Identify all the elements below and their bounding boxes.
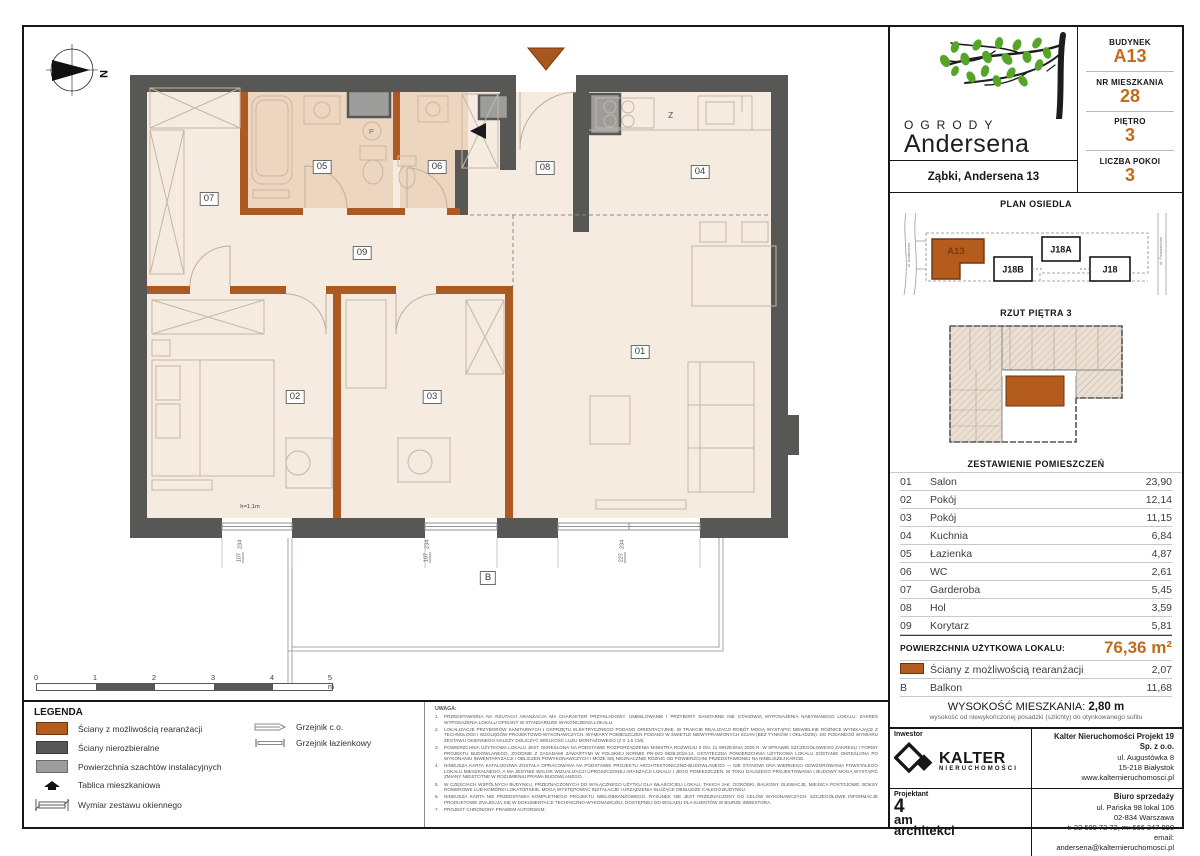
legend-item: Grzejnik c.o.	[252, 722, 371, 732]
scale-tick: 2	[152, 673, 156, 682]
table-row: 09Korytarz5,81	[900, 617, 1172, 635]
floor-overview-title: RZUT PIĘTRA 3	[890, 308, 1182, 318]
notes-block: UWAGA: 1.PRZEDSTAWIONA NA RZUTACH ARANŻA…	[425, 702, 888, 827]
room-area: 12,14	[1146, 494, 1172, 506]
info-nr-mieszkania: NR MIESZKANIA 28	[1086, 72, 1174, 112]
floor-overview-section: RZUT PIĘTRA 3	[890, 302, 1182, 453]
legend-item: Wymiar zestawu okiennego	[34, 797, 252, 813]
room-area: 6,84	[1152, 530, 1172, 542]
footer-block: Inwestor KALTER NIERUCHOMOŚCI Kalter Nie	[890, 727, 1182, 856]
highlighted-unit	[1006, 376, 1064, 406]
room-no: 09	[900, 620, 930, 632]
table-row: BBalkon11,68	[900, 679, 1172, 697]
unit-info-box: BUDYNEK A13 NR MIESZKANIA 28 PIĘTRO 3 LI…	[1078, 27, 1182, 192]
room-no: 07	[900, 584, 930, 596]
building-a13	[932, 239, 984, 279]
room-name: Pokój	[930, 512, 1147, 524]
table-row: 02Pokój12,14	[900, 491, 1172, 509]
apartment-height-note: WYSOKOŚĆ MIESZKANIA: 2,80 m wysokość od …	[890, 697, 1182, 727]
label-j18a: J18A	[1050, 245, 1072, 255]
legend-left-column: Ściany z możliwością rearanżacjiŚciany n…	[34, 722, 252, 819]
room-name: Kuchnia	[930, 530, 1152, 542]
table-row: 07Garderoba5,45	[900, 581, 1172, 599]
apartment-card-sheet: { "info_panel": { "budynek_label": "BUDY…	[0, 0, 1200, 849]
info-pietro: PIĘTRO 3	[1086, 112, 1174, 152]
scale-tick: 0	[34, 673, 38, 682]
note-number: 1.	[435, 714, 441, 725]
room-name: Pokój	[930, 494, 1146, 506]
room-name: Ściany z możliwością rearanżacji	[930, 664, 1152, 676]
note-line: 7.PROJEKT CHRONIONY PRAWEM AUTORSKIM.	[435, 807, 878, 813]
table-row: Ściany z możliwością rearanżacji2,07	[900, 661, 1172, 679]
kalter-logo: KALTER NIERUCHOMOŚCI	[894, 741, 1027, 781]
swatch-orange-icon	[34, 722, 70, 735]
address-line: email: andersena@kalternieruchomosci.pl	[1040, 833, 1174, 853]
room-name: Łazienka	[930, 548, 1152, 560]
note-number: 2.	[435, 727, 441, 744]
note-number: 6.	[435, 794, 441, 805]
orange-wall-swatch-icon	[900, 663, 924, 674]
room-no: 08	[900, 602, 930, 614]
note-line: 4.NINIEJSZA KARTA KATALOGOWA ZOSTAŁA OPR…	[435, 763, 878, 780]
room-no: B	[900, 682, 930, 694]
scale-tick: 4	[270, 673, 274, 682]
scale-tick: 3	[211, 673, 215, 682]
notes-lines: 1.PRZEDSTAWIONA NA RZUTACH ARANŻACJA MA …	[435, 714, 878, 813]
notes-title: UWAGA:	[435, 706, 878, 712]
room-area: 3,59	[1152, 602, 1172, 614]
usable-area-row: POWIERZCHNIA UŻYTKOWA LOKALU: 76,36 m²	[900, 635, 1172, 661]
kalter-logo-icon	[894, 741, 934, 781]
kitchen-z-label: z	[668, 109, 674, 121]
note-text: W CZĘŚCIACH WSPÓLNYCH BUDYNKU, PRZEZNACZ…	[444, 782, 878, 793]
legend-title: LEGENDA	[34, 707, 414, 718]
scale-tick: 1	[93, 673, 97, 682]
room-no: 01	[900, 476, 930, 488]
company-address: Kalter Nieruchomości Projekt 19 Sp. z o.…	[1032, 729, 1182, 788]
room-no	[900, 663, 930, 677]
note-line: 1.PRZEDSTAWIONA NA RZUTACH ARANŻACJA MA …	[435, 714, 878, 725]
street-right-label: ul. Powstańców	[1158, 237, 1163, 265]
north-arrow-icon	[52, 60, 90, 81]
company-lines: ul. Augustówka 815-218 Białystokwww.kalt…	[1040, 753, 1174, 783]
note-text: PRZEDSTAWIONA NA RZUTACH ARANŻACJA MA CH…	[444, 714, 878, 725]
site-plan-map: A13 J18B J18A J18 ul. Andersena ul. Pows…	[890, 211, 1180, 297]
legend-item: Ściany z możliwością rearanżacji	[34, 722, 252, 735]
balcony-outline	[288, 538, 723, 690]
right-panel: OGRODY Andersena Ząbki, Andersena 13 BUD…	[888, 27, 1182, 827]
note-text: POWIERZCHNIA UŻYTKOWA LOKALU JEST OKREŚL…	[444, 745, 878, 762]
usable-area-value: 76,36 m²	[1104, 638, 1172, 658]
legend-item: Grzejnik łazienkowy	[252, 738, 371, 748]
label-a13: A13	[947, 246, 964, 257]
room-name: Garderoba	[930, 584, 1152, 596]
scale-tick: 5 m	[328, 673, 334, 691]
note-line: 2.LOKALIZACJE PRZYBORÓW SANITARNYCH I OS…	[435, 727, 878, 744]
address-line: ul. Augustówka 8	[1040, 753, 1174, 763]
address-line: t: 22 509 72 72, m: 666 347 990	[1040, 823, 1174, 833]
grzejnik-laz-icon	[252, 738, 288, 748]
legend-item-label: Wymiar zestawu okiennego	[78, 800, 182, 810]
entrance-marker-icon	[528, 48, 564, 70]
note-line: 5.W CZĘŚCIACH WSPÓLNYCH BUDYNKU, PRZEZNA…	[435, 782, 878, 793]
legend-item-label: Powierzchnia szachtów instalacyjnych	[78, 762, 222, 772]
extra-rows: Ściany z możliwością rearanżacji2,07BBal…	[890, 661, 1182, 697]
legend-item: Tablica mieszkaniowa	[34, 779, 252, 791]
inwestor-label: Inwestor	[894, 731, 1027, 738]
room-name: Balkon	[930, 682, 1147, 694]
projektant-cell: Projektant 4 am architekci	[890, 789, 1032, 856]
table-row: 03Pokój11,15	[900, 509, 1172, 527]
note-text: NINIEJSZA KARTA KATALOGOWA ZOSTAŁA OPRAC…	[444, 763, 878, 780]
table-row: 01Salon23,90	[900, 473, 1172, 491]
room-area: 5,81	[1152, 620, 1172, 632]
north-compass: N	[46, 44, 109, 96]
north-letter: N	[97, 70, 109, 78]
dimension-lines	[222, 538, 700, 568]
address-line: 02-834 Warszawa	[1040, 813, 1174, 823]
brand-title: OGRODY Andersena	[904, 118, 1029, 156]
kalter-sub: NIERUCHOMOŚCI	[939, 766, 1018, 772]
room-no: 05	[900, 548, 930, 560]
room-area: 11,68	[1147, 682, 1173, 694]
label-j18: J18	[1102, 265, 1117, 275]
tablica-icon	[34, 779, 70, 791]
sheet-frame: z P N 010203040506070809Bh=1,1m107234107…	[22, 25, 1184, 829]
note-number: 4.	[435, 763, 441, 780]
legend-item: Powierzchnia szachtów instalacyjnych	[34, 760, 252, 773]
room-area: 11,15	[1147, 512, 1173, 524]
room-area: 4,87	[1152, 548, 1172, 560]
street-left-label: ul. Andersena	[906, 242, 911, 267]
address-line: www.kalternieruchomosci.pl	[1040, 773, 1174, 783]
room-name: Korytarz	[930, 620, 1152, 632]
legend: LEGENDA Ściany z możliwością rearanżacji…	[24, 702, 425, 827]
label-j18b: J18B	[1002, 265, 1024, 275]
height-label: WYSOKOŚĆ MIESZKANIA:	[948, 701, 1086, 713]
address-line: ul. Pańska 98 lokal 106	[1040, 803, 1174, 813]
washer-p-label: P	[369, 129, 374, 136]
note-line: 3.POWIERZCHNIA UŻYTKOWA LOKALU JEST OKRE…	[435, 745, 878, 762]
site-plan-section: PLAN OSIEDLA	[890, 193, 1182, 302]
legend-right-column: Grzejnik c.o.Grzejnik łazienkowy	[252, 722, 371, 819]
room-no: 02	[900, 494, 930, 506]
info-budynek: BUDYNEK A13	[1086, 32, 1174, 72]
window-dim-icon	[34, 797, 70, 813]
note-text: NINIEJSZA KARTA NIE PRZEDSTAWIA KOMPLETN…	[444, 794, 878, 805]
room-area: 5,45	[1152, 584, 1172, 596]
legend-item-label: Ściany nierozbieralne	[78, 743, 159, 753]
usable-area-label: POWIERZCHNIA UŻYTKOWA LOKALU:	[900, 643, 1104, 653]
brand-logo: OGRODY Andersena	[890, 27, 1077, 160]
legend-item-label: Grzejnik łazienkowy	[296, 738, 371, 748]
table-row: 04Kuchnia6,84	[900, 527, 1172, 545]
height-subnote: wysokość od niewykończonej posadzki (szl…	[890, 714, 1182, 721]
rooms-table-section: ZESTAWIENIE POMIESZCZEŃ 01Salon23,9002Po…	[890, 453, 1182, 697]
scale-bar-numbers: 012345 m	[36, 673, 336, 683]
note-text: PROJEKT CHRONIONY PRAWEM AUTORSKIM.	[444, 807, 546, 813]
rooms-table: 01Salon23,9002Pokój12,1403Pokój11,1504Ku…	[890, 472, 1182, 635]
legend-item-label: Grzejnik c.o.	[296, 722, 343, 732]
tree-logo-icon	[899, 31, 1069, 119]
room-name: Hol	[930, 602, 1152, 614]
scale-bar-track	[36, 683, 333, 691]
brand-line2: Andersena	[904, 132, 1029, 156]
note-number: 7.	[435, 807, 441, 813]
room-no: 06	[900, 566, 930, 578]
info-liczba-pokoi: LICZBA POKOI 3	[1086, 151, 1174, 190]
room-name: WC	[930, 566, 1152, 578]
table-row: 05Łazienka4,87	[900, 545, 1172, 563]
inwestor-cell: Inwestor KALTER NIERUCHOMOŚCI	[890, 729, 1032, 788]
note-text: LOKALIZACJE PRZYBORÓW SANITARNYCH I OSPR…	[444, 727, 878, 744]
projektant-label: Projektant	[894, 791, 1027, 798]
swatch-dark-icon	[34, 741, 70, 754]
room-area: 23,90	[1146, 476, 1172, 488]
sales-office-label: Biuro sprzedaży	[1040, 792, 1174, 802]
room-area: 2,07	[1152, 664, 1172, 676]
bottom-strip: LEGENDA Ściany z możliwością rearanżacji…	[24, 700, 888, 827]
address-line: 15-218 Białystok	[1040, 763, 1174, 773]
room-name: Salon	[930, 476, 1146, 488]
project-address: Ząbki, Andersena 13	[890, 160, 1077, 192]
legend-item-label: Tablica mieszkaniowa	[78, 780, 160, 790]
company-name: Kalter Nieruchomości Projekt 19 Sp. z o.…	[1040, 732, 1174, 752]
note-line: 6.NINIEJSZA KARTA NIE PRZEDSTAWIA KOMPLE…	[435, 794, 878, 805]
note-number: 3.	[435, 745, 441, 762]
rooms-table-title: ZESTAWIENIE POMIESZCZEŃ	[890, 459, 1182, 469]
table-row: 08Hol3,59	[900, 599, 1172, 617]
site-plan-title: PLAN OSIEDLA	[890, 199, 1182, 209]
scale-bar: 012345 m	[36, 673, 336, 691]
kalter-name: KALTER	[939, 751, 1018, 766]
table-row: 06WC2,61	[900, 563, 1172, 581]
sales-office-lines: ul. Pańska 98 lokal 10602-834 Warszawat:…	[1040, 803, 1174, 853]
buildings	[932, 237, 1130, 281]
room-no: 03	[900, 512, 930, 524]
floor-overview-map	[890, 320, 1180, 448]
architect-logo: 4 am architekci	[894, 799, 1027, 836]
room-no: 04	[900, 530, 930, 542]
note-number: 5.	[435, 782, 441, 793]
legend-item: Ściany nierozbieralne	[34, 741, 252, 754]
sales-office: Biuro sprzedaży ul. Pańska 98 lokal 1060…	[1032, 789, 1182, 856]
legend-item-label: Ściany z możliwością rearanżacji	[78, 724, 202, 734]
room-area: 2,61	[1152, 566, 1172, 578]
grzejnik-co-icon	[252, 722, 288, 732]
swatch-gray-icon	[34, 760, 70, 773]
header-row: OGRODY Andersena Ząbki, Andersena 13 BUD…	[890, 27, 1182, 193]
height-value: 2,80 m	[1088, 701, 1124, 713]
